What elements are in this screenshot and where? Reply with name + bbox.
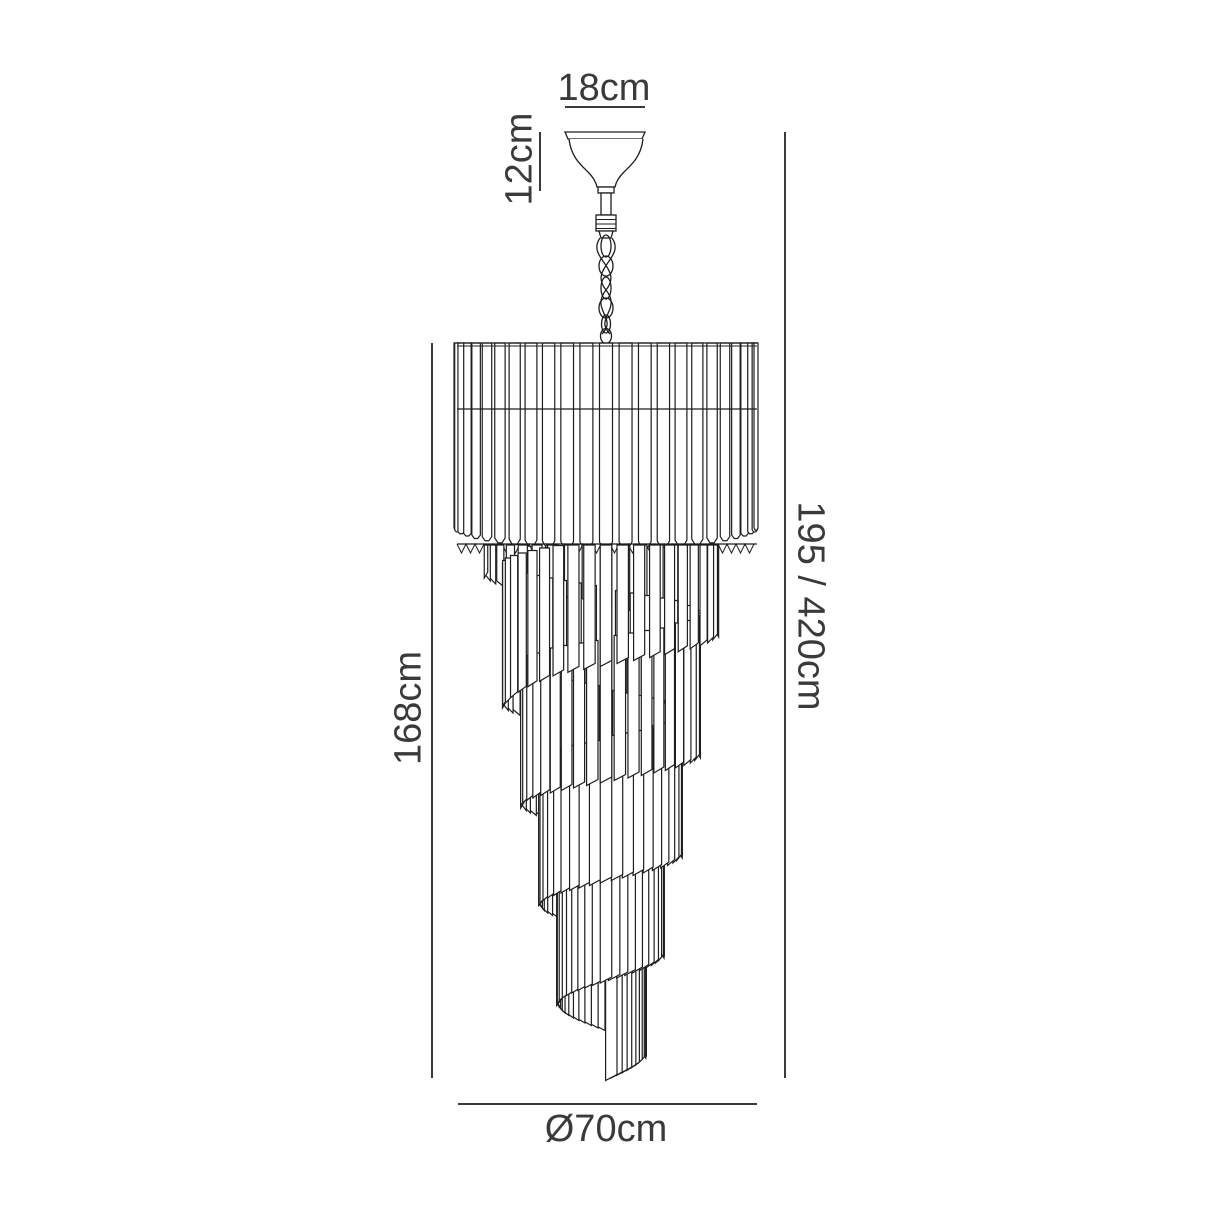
dimension-drawing-page: 18cm 12cm 168cm 195 / 420cm Ø70cm (0, 0, 1214, 1214)
dimension-label-diameter: Ø70cm (545, 1108, 667, 1150)
chain-end-loop (601, 329, 612, 344)
dimension-label-body-height: 168cm (387, 651, 429, 765)
canopy-collar (598, 187, 614, 193)
spiral-cascade-drawing (484, 545, 718, 1081)
canopy-bell (569, 139, 643, 187)
stem (601, 193, 611, 215)
dimension-label-canopy-height: 12cm (498, 113, 540, 206)
chandelier-diagram-canvas: 18cm 12cm 168cm 195 / 420cm Ø70cm (0, 0, 1214, 1214)
dimension-label-canopy-width: 18cm (558, 67, 651, 109)
suspension-chain-drawing (596, 193, 616, 344)
chandelier-drum-drawing (454, 343, 758, 553)
canopy-plate (565, 132, 645, 139)
dimension-label-overall-height: 195 / 420cm (790, 501, 832, 710)
ceiling-canopy-drawing (565, 132, 645, 193)
